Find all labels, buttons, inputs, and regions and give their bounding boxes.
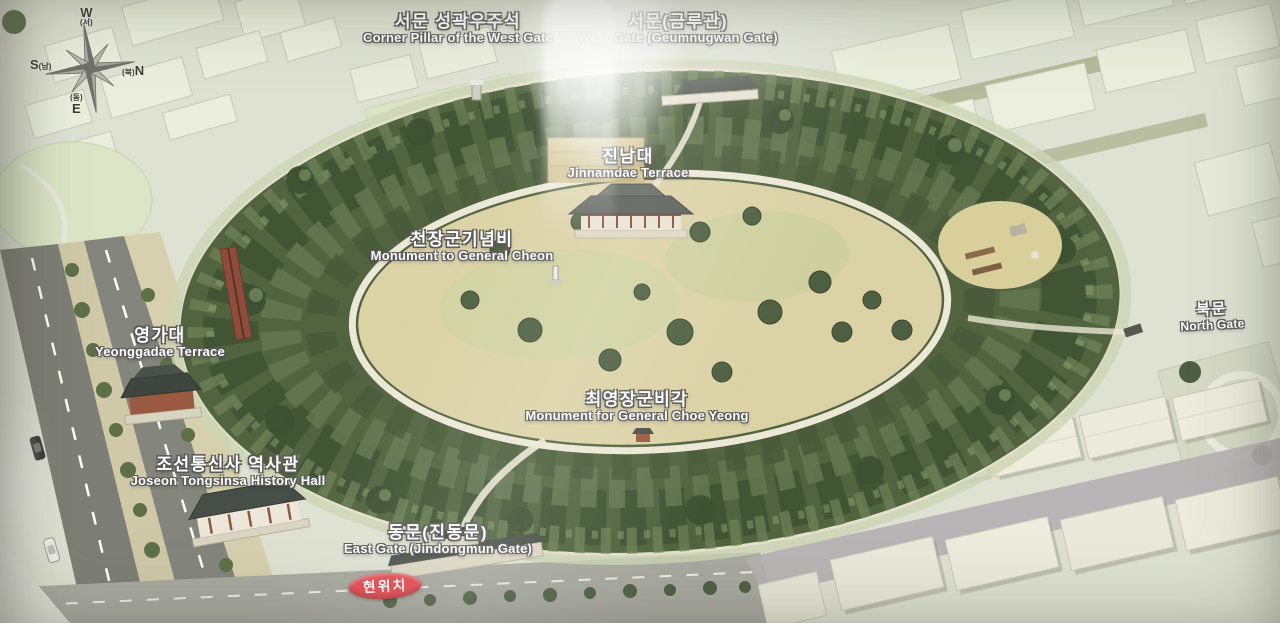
compass-west: W(서) <box>80 6 93 27</box>
tree <box>2 10 26 34</box>
compass-north: (북)N <box>122 64 144 77</box>
map-label-east-gate: 동문(진동문) East Gate (Jindongmun Gate) <box>344 523 532 557</box>
map-label-monument-general-cheon: 천장군기념비 Monument to General Cheon <box>371 230 554 264</box>
park-map-illustration <box>0 0 1280 623</box>
map-label-joseon-tongsinsa-hall: 조선통신사 역사관 Joseon Tongsinsa History Hall <box>131 455 326 489</box>
exercise-clearing <box>938 201 1062 289</box>
compass-rose-icon: W(서) S(남) (북)N (동)E <box>30 6 150 124</box>
map-label-monument-general-choe: 최영장군비각 Monument for General Choe Yeong <box>525 390 748 424</box>
compass-south: S(남) <box>30 58 51 71</box>
map-label-yeonggadae-terrace: 영가대 Yeonggadae Terrace <box>95 326 225 360</box>
park-map-photo: W(서) S(남) (북)N (동)E 서문 성곽우주석 Corner Pill… <box>0 0 1280 623</box>
tree <box>1179 361 1201 383</box>
map-label-jinnamdae-terrace: 진남대 Jinnamdae Terrace <box>568 147 689 181</box>
compass-east: (동)E <box>70 94 83 115</box>
corner-pillar-structure <box>470 80 483 100</box>
map-label-west-gate: 서문(금루관) West Gate (Geumnugwan Gate) <box>578 12 777 46</box>
map-label-corner-pillar-west-gate: 서문 성곽우주석 Corner Pillar of the West Gate <box>363 12 553 46</box>
map-label-north-gate: 북문 North Gate <box>1179 300 1245 334</box>
